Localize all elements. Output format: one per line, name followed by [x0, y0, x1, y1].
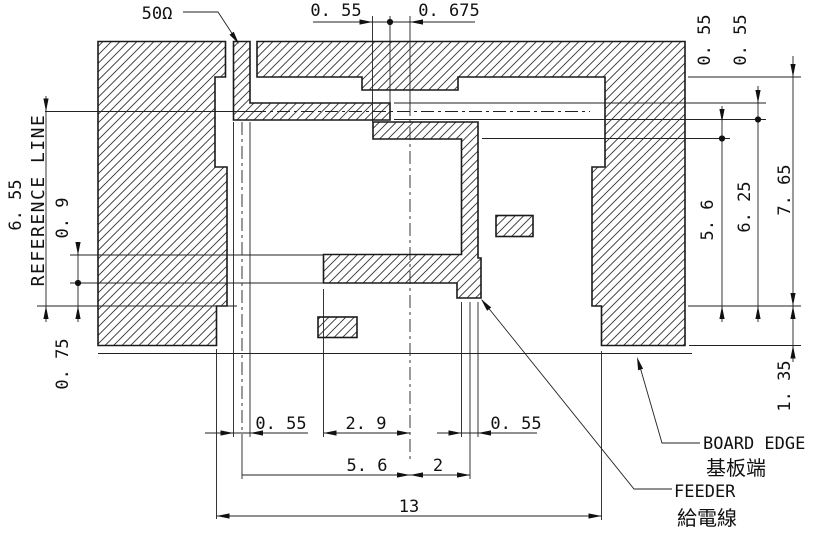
left-ground-plane	[98, 42, 227, 346]
dim-right-foot: 1. 35	[775, 360, 795, 411]
dim-top-to-center: 0. 675	[418, 1, 479, 21]
label-board-edge-ja: 基板端	[706, 456, 766, 480]
dim-right-5-6: 5. 6	[698, 200, 718, 241]
dim-right-lower-strip: 0. 55	[731, 14, 751, 65]
label-reference-line: REFERENCE LINE	[28, 114, 49, 287]
dim-bottom-bar-width: 0. 55	[490, 414, 541, 434]
dim-bottom-feed-width: 0. 55	[255, 414, 306, 434]
dim-left-0-9: 0. 9	[53, 198, 73, 239]
copper-shapes	[98, 42, 685, 346]
dim-right-6-25: 6. 25	[735, 181, 755, 232]
dim-left-6-55: 6. 55	[6, 179, 26, 230]
dim-bottom-5-6: 5. 6	[347, 456, 388, 476]
leader-50ohm	[183, 12, 237, 41]
dim-right-upper-strip: 0. 55	[695, 14, 715, 65]
antenna-dimension-drawing: 50Ω 0. 55 0. 675 0. 55 0. 55 5. 6 6. 25 …	[0, 0, 816, 538]
label-feeder-ja: 給電線	[677, 506, 737, 530]
drawing-canvas: 50Ω 0. 55 0. 675 0. 55 0. 55 5. 6 6. 25 …	[0, 0, 816, 538]
dim-bottom-2: 2	[433, 456, 443, 476]
arrow-board-edge	[637, 357, 643, 370]
meander-strip-and-feeder-pad	[324, 122, 482, 298]
dim-bottom-13: 13	[399, 497, 419, 517]
dim-right-7-65: 7. 65	[775, 164, 795, 215]
pad-a	[496, 216, 533, 237]
label-50ohm: 50Ω	[142, 4, 173, 24]
leader-board-edge	[638, 360, 700, 443]
dim-bottom-2-9: 2. 9	[346, 414, 387, 434]
label-board-edge-en: BOARD EDGE	[703, 434, 805, 454]
label-feeder-en: FEEDER	[674, 482, 736, 502]
dim-top-offset: 0. 55	[310, 1, 361, 21]
dim-left-0-75: 0. 75	[53, 338, 73, 389]
